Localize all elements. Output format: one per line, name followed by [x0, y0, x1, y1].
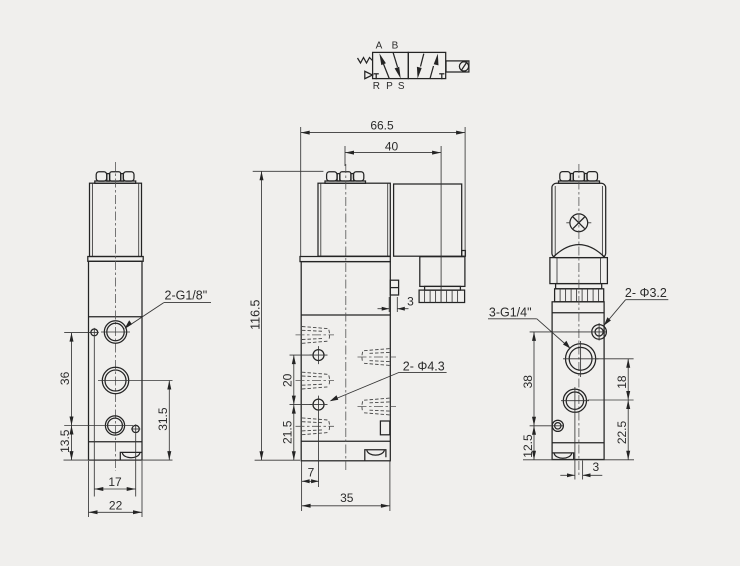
svg-text:P: P — [386, 81, 393, 92]
svg-text:B: B — [392, 41, 399, 52]
svg-text:38: 38 — [521, 375, 535, 389]
svg-text:2- Φ4.3: 2- Φ4.3 — [403, 359, 445, 373]
svg-text:17: 17 — [108, 475, 122, 489]
svg-text:13.5: 13.5 — [58, 429, 72, 453]
svg-text:40: 40 — [385, 139, 399, 153]
svg-text:20: 20 — [281, 373, 295, 387]
svg-text:12.5: 12.5 — [521, 434, 535, 458]
svg-text:3-G1/4": 3-G1/4" — [489, 305, 532, 319]
svg-text:22.5: 22.5 — [615, 420, 629, 444]
svg-text:3: 3 — [407, 295, 414, 309]
svg-text:2- Φ3.2: 2- Φ3.2 — [625, 286, 667, 300]
svg-text:116.5: 116.5 — [249, 299, 263, 329]
svg-text:7: 7 — [308, 466, 315, 480]
svg-text:21.5: 21.5 — [281, 420, 295, 444]
svg-text:S: S — [398, 81, 405, 92]
svg-text:36: 36 — [58, 371, 72, 385]
svg-text:3: 3 — [593, 460, 600, 474]
svg-text:2-G1/8": 2-G1/8" — [165, 289, 208, 303]
svg-text:22: 22 — [109, 498, 123, 512]
svg-text:66.5: 66.5 — [370, 118, 394, 132]
svg-text:R: R — [373, 81, 380, 92]
svg-text:35: 35 — [340, 491, 354, 505]
svg-text:A: A — [376, 41, 383, 52]
svg-text:18: 18 — [615, 375, 629, 389]
svg-text:31.5: 31.5 — [156, 407, 170, 431]
